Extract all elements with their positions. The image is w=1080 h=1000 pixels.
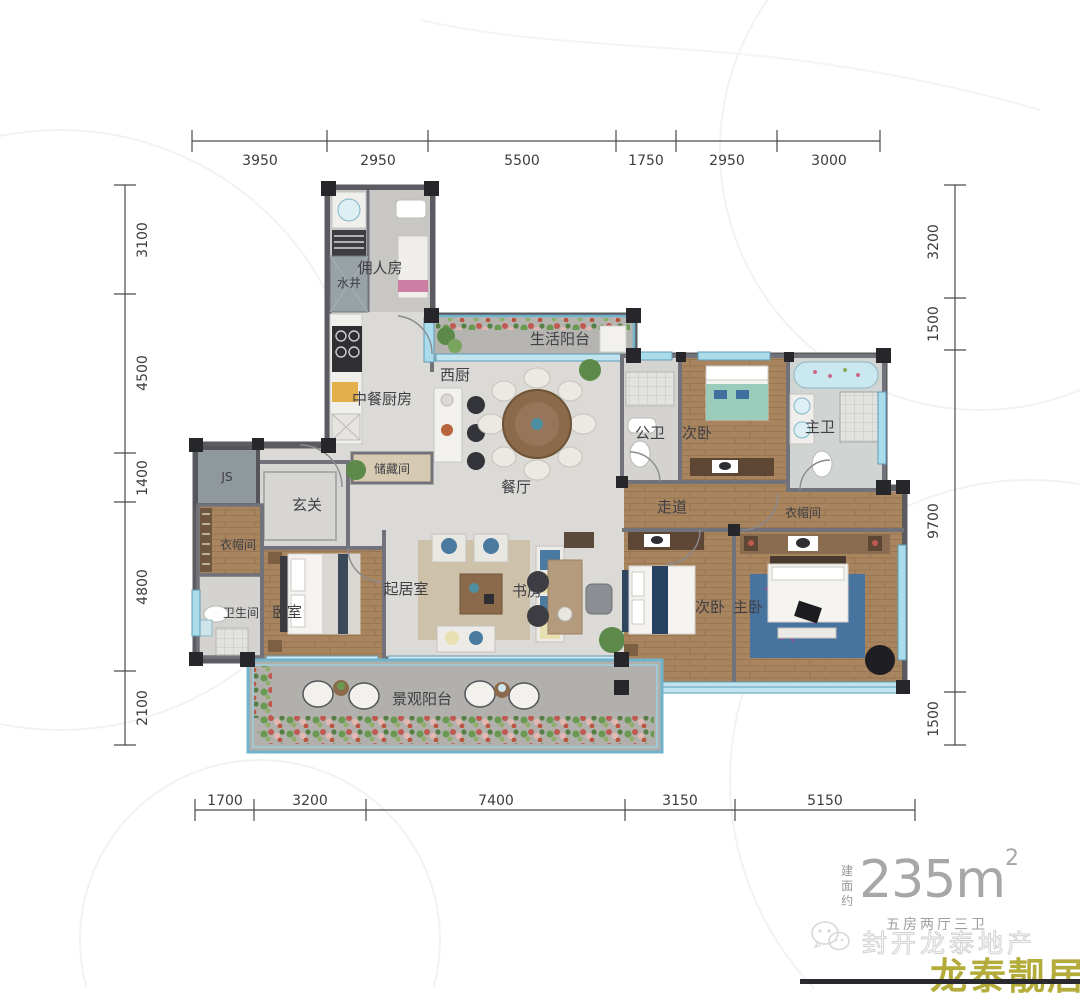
label-public-bath: 公卫 <box>635 424 665 442</box>
view-balcony <box>248 660 662 752</box>
label-js: JS <box>220 470 232 484</box>
label-hallway: 走道 <box>657 498 687 516</box>
dim-bottom-5: 5150 <box>807 793 843 809</box>
area-value: 235m2 <box>859 854 1018 906</box>
dim-top-6: 3000 <box>811 153 847 169</box>
label-view-balcony: 景观阳台 <box>392 690 452 708</box>
dim-right-1: 3200 <box>926 224 942 260</box>
label-study: 书房 <box>512 582 542 600</box>
label-bedroom-left: 卧室 <box>272 603 302 621</box>
label-master-bath: 主卫 <box>805 418 835 436</box>
master-bath <box>788 356 886 490</box>
dim-left-3: 1400 <box>135 460 151 496</box>
label-bath-left: 卫生间 <box>223 606 259 620</box>
dimension-top: 3950 2950 5500 1750 2950 3000 <box>192 130 880 169</box>
dim-top-3: 5500 <box>504 153 540 169</box>
public-bath <box>622 352 680 482</box>
area-prefix: 建面约 <box>841 864 856 909</box>
label-cloak-left: 衣帽间 <box>220 537 256 552</box>
area-row: 建面约 235m2 <box>841 854 1018 909</box>
dim-top-4: 1750 <box>628 153 664 169</box>
info-panel: 建面约 235m2 五房两厅三卫 封开龙泰地产 龙泰靓居 <box>800 858 1080 988</box>
label-well: 水井 <box>337 276 361 290</box>
label-master-bedroom: 主卧 <box>733 598 763 616</box>
bedroom2-top <box>680 352 788 482</box>
dimension-bottom: 1700 3200 7400 3150 5150 <box>195 793 915 821</box>
label-living: 起居室 <box>383 580 428 598</box>
label-servant: 佣人房 <box>357 259 402 277</box>
label-dining: 餐厅 <box>501 478 531 496</box>
logo-text: 龙泰靓居 <box>930 946 1080 1000</box>
dim-top-5: 2950 <box>709 153 745 169</box>
dim-right-2: 1500 <box>926 306 942 342</box>
dimension-left: 3100 4500 1400 4800 2100 <box>114 185 151 745</box>
label-storage: 储藏间 <box>374 461 410 476</box>
dim-left-5: 2100 <box>135 690 151 726</box>
dim-top-2: 2950 <box>360 153 396 169</box>
dim-left-1: 3100 <box>135 222 151 258</box>
west-kitchen-island <box>434 388 485 470</box>
wechat-icon <box>810 920 852 958</box>
dim-bottom-1: 1700 <box>207 793 243 809</box>
dim-left-2: 4500 <box>135 355 151 391</box>
dim-top-1: 3950 <box>242 153 278 169</box>
label-bedroom2-right: 次卧 <box>695 598 725 616</box>
label-life-balcony: 生活阳台 <box>530 330 590 348</box>
label-chinese-kitchen: 中餐厨房 <box>352 390 412 408</box>
dim-right-4: 1500 <box>926 701 942 737</box>
label-foyer: 玄关 <box>292 496 322 514</box>
label-cloak-master: 衣帽间 <box>785 505 821 520</box>
bottom-bar <box>800 979 1080 984</box>
area-superscript: 2 <box>1005 846 1018 871</box>
dim-bottom-2: 3200 <box>292 793 328 809</box>
dim-left-4: 4800 <box>135 569 151 605</box>
floor-plan: 3950 2950 5500 1750 2950 3000 3100 4500 … <box>0 0 1080 988</box>
dim-right-3: 9700 <box>926 503 942 539</box>
label-west-kitchen: 西厨 <box>440 366 470 384</box>
dim-bottom-4: 3150 <box>662 793 698 809</box>
dimension-right: 3200 1500 9700 1500 <box>926 185 966 745</box>
dim-bottom-3: 7400 <box>478 793 514 809</box>
label-bedroom2-top: 次卧 <box>682 424 712 442</box>
